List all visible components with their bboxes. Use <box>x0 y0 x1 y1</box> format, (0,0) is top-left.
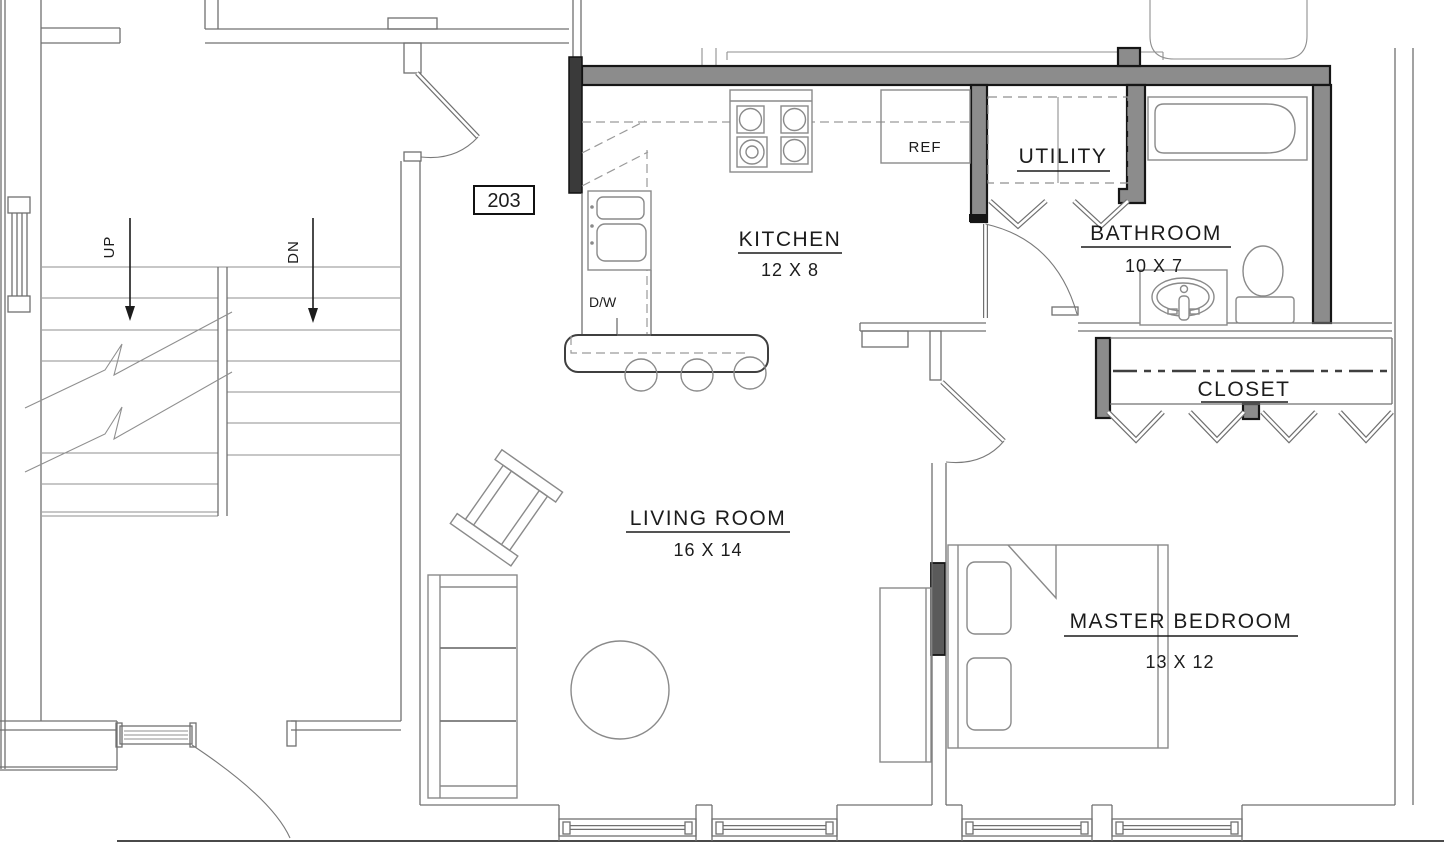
bathtub <box>1148 97 1307 160</box>
stair-break-line <box>25 312 232 408</box>
bed <box>948 545 1168 748</box>
blanket-fold <box>1008 545 1056 598</box>
master-bedroom: MASTER BEDROOM 13 X 12 <box>942 382 1298 748</box>
closet-center-stub <box>1243 404 1259 419</box>
bar-counter <box>565 335 768 372</box>
neighbor-tub <box>1150 0 1307 59</box>
kitchen-sink <box>588 191 651 270</box>
stairwell-entry-door <box>116 721 296 838</box>
bar-stool <box>681 359 713 391</box>
bedroom-wall-segment <box>931 563 945 655</box>
bar-stool <box>625 359 657 391</box>
kitchen-label: KITCHEN <box>739 228 842 251</box>
party-wall-top <box>582 66 1330 85</box>
utility-bath-divider-wall <box>1119 85 1145 203</box>
exterior-walls <box>0 0 1444 841</box>
bathroom-right-wall <box>1313 85 1331 323</box>
stairs-up-label: UP <box>101 236 118 259</box>
living-room-dims: 16 X 14 <box>673 540 742 560</box>
master-bedroom-dims: 13 X 12 <box>1145 652 1214 672</box>
stairs-down-arrow <box>308 218 318 323</box>
living-room-label: LIVING ROOM <box>630 507 787 530</box>
unit-entry: 203 <box>404 43 534 214</box>
refrigerator-label: REF <box>909 139 942 156</box>
bathroom-dims: 10 X 7 <box>1125 256 1183 276</box>
refrigerator: REF <box>881 90 970 163</box>
neighbor-unit <box>702 0 1307 66</box>
closet: CLOSET <box>1108 338 1392 440</box>
closet-label: CLOSET <box>1197 378 1290 401</box>
console-table <box>880 588 931 762</box>
living-room-window-right <box>712 819 837 836</box>
bathroom-sink <box>1140 270 1227 325</box>
party-wall-cap <box>569 57 582 193</box>
floor-plan: UP DN 203 <box>0 0 1444 846</box>
bathroom-label: BATHROOM <box>1090 222 1222 245</box>
stair-treads <box>42 267 400 516</box>
pillow <box>967 658 1011 730</box>
closet-left-wall <box>1096 338 1110 418</box>
master-bedroom-label: MASTER BEDROOM <box>1070 610 1293 633</box>
bedroom-window-left <box>962 819 1092 836</box>
stair-break-line <box>25 372 232 472</box>
round-table <box>571 641 669 739</box>
door-hinge-cap <box>969 214 988 222</box>
stairs-down-label: DN <box>285 240 302 264</box>
stairs-up-arrow <box>125 218 135 321</box>
utility-left-wall <box>971 85 987 222</box>
bedroom-window-right <box>1112 819 1242 836</box>
kitchen: REF D/W KITCHEN 12 X 8 <box>565 90 970 391</box>
living-room: LIVING ROOM 16 X 14 <box>428 450 931 798</box>
utility-closet: UTILITY <box>988 97 1128 226</box>
dishwasher-label: D/W <box>589 294 617 310</box>
stairwell: UP DN <box>8 197 400 838</box>
bedroom-door <box>942 382 1004 463</box>
demising-walls <box>569 48 1331 655</box>
bathroom-door <box>986 224 1079 318</box>
pilaster <box>388 18 437 29</box>
stairwell-window <box>8 197 30 312</box>
sofa <box>428 575 517 798</box>
toilet <box>1236 246 1294 323</box>
pillow <box>967 562 1011 634</box>
kitchen-dims: 12 X 8 <box>761 260 819 280</box>
stove <box>730 90 812 172</box>
unit-number-plate: 203 <box>474 186 534 214</box>
unit-number: 203 <box>487 190 520 212</box>
utility-label: UTILITY <box>1019 145 1108 168</box>
armchair <box>450 450 562 566</box>
living-room-window-left <box>559 819 696 836</box>
